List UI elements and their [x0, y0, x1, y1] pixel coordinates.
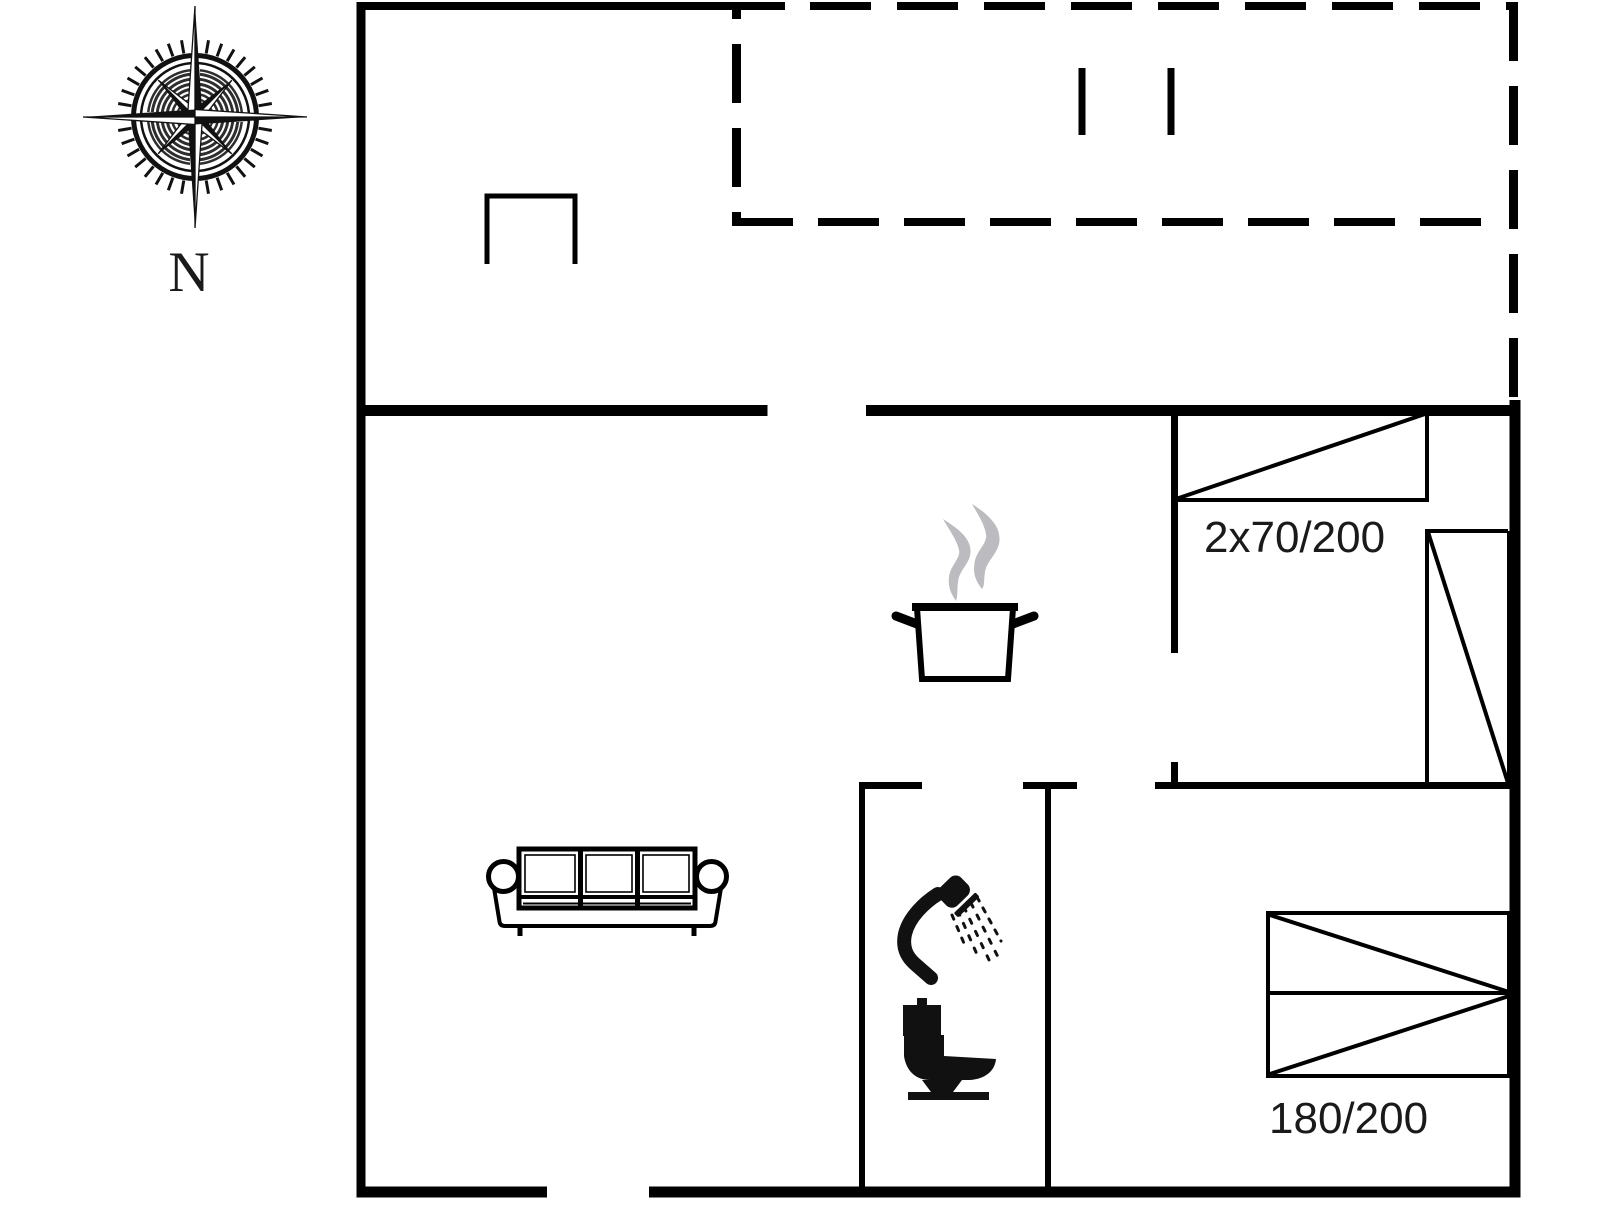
- svg-text:N: N: [168, 241, 209, 304]
- svg-text:180/200: 180/200: [1269, 1094, 1428, 1143]
- svg-text:2x70/200: 2x70/200: [1204, 513, 1385, 562]
